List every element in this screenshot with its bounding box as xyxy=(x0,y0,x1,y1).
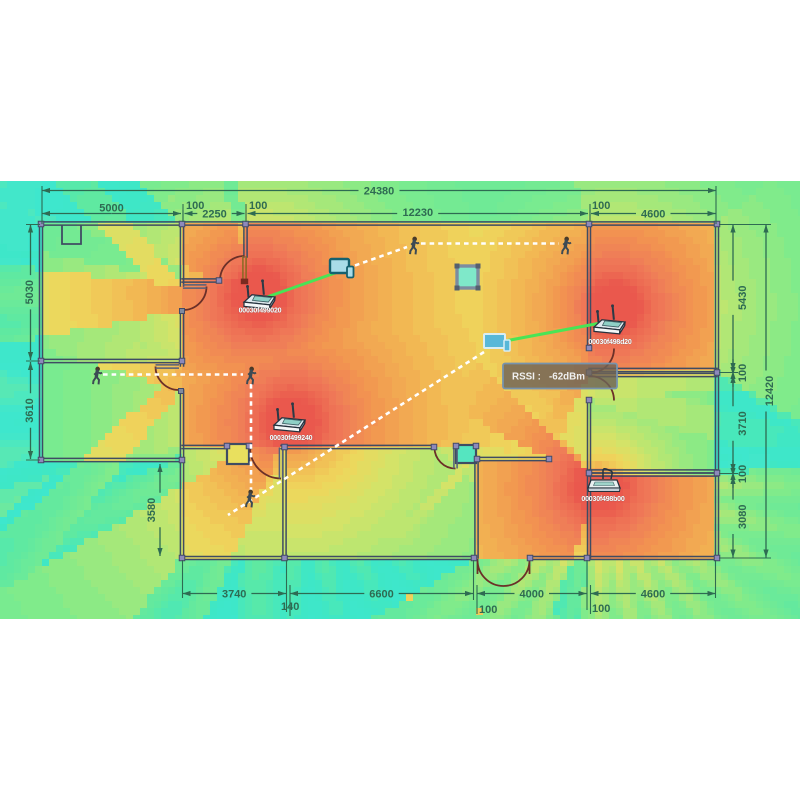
svg-text:24380: 24380 xyxy=(364,185,395,197)
svg-text:-62dBm: -62dBm xyxy=(549,372,585,383)
svg-text:5430: 5430 xyxy=(737,286,749,310)
svg-text:4600: 4600 xyxy=(641,588,665,600)
svg-text:RSSI :: RSSI : xyxy=(512,372,541,383)
svg-text:3710: 3710 xyxy=(737,411,749,435)
svg-text:3080: 3080 xyxy=(737,505,749,529)
svg-text:100: 100 xyxy=(479,604,497,616)
svg-text:00030f498b00: 00030f498b00 xyxy=(581,496,624,503)
svg-text:100: 100 xyxy=(592,603,610,615)
svg-text:100: 100 xyxy=(186,200,204,212)
svg-text:100: 100 xyxy=(249,200,267,212)
svg-text:5030: 5030 xyxy=(24,280,36,304)
svg-text:3610: 3610 xyxy=(24,398,36,422)
svg-text:100: 100 xyxy=(737,465,749,483)
svg-text:100: 100 xyxy=(592,200,610,212)
svg-text:3580: 3580 xyxy=(146,498,158,522)
svg-text:00030f498d20: 00030f498d20 xyxy=(588,339,631,346)
svg-text:5000: 5000 xyxy=(99,202,123,214)
svg-text:6600: 6600 xyxy=(369,588,393,600)
svg-text:00030f499240: 00030f499240 xyxy=(270,435,313,442)
svg-text:4000: 4000 xyxy=(520,588,544,600)
svg-text:00030f499020: 00030f499020 xyxy=(239,308,282,315)
svg-text:12230: 12230 xyxy=(403,207,434,219)
svg-text:4600: 4600 xyxy=(641,208,665,220)
svg-text:12420: 12420 xyxy=(764,376,776,407)
svg-text:3740: 3740 xyxy=(222,588,246,600)
svg-text:100: 100 xyxy=(737,364,749,382)
svg-text:2250: 2250 xyxy=(202,208,226,220)
